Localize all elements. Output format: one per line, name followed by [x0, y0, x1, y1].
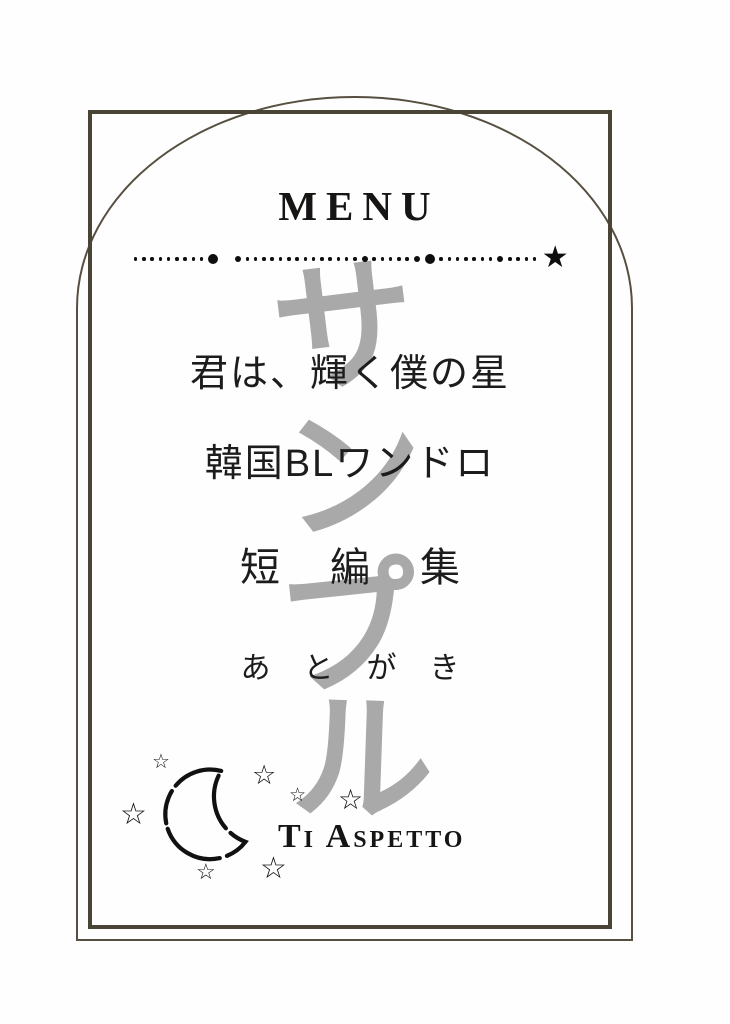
- outline-star-icon: ☆: [338, 786, 363, 814]
- dotted-divider: ★: [88, 245, 612, 273]
- divider-dot: [362, 256, 368, 262]
- footer-text: Ti Aspetto: [278, 818, 465, 856]
- outline-star-icon: ☆: [252, 762, 276, 789]
- menu-item-short-stories: 短編集: [88, 535, 612, 593]
- divider-dot: [345, 257, 349, 261]
- divider-dot: [246, 257, 250, 261]
- divider-dot: [337, 257, 341, 261]
- divider-dot: [425, 254, 435, 264]
- divider-dots: [131, 254, 538, 264]
- divider-dot: [405, 257, 409, 261]
- divider-dot: [262, 257, 266, 261]
- divider-dot: [497, 256, 503, 262]
- divider-dot: [472, 257, 476, 261]
- divider-dot: [200, 257, 204, 261]
- divider-dot: [508, 257, 512, 261]
- menu-item-story-2: 韓国BLワンドロ: [88, 432, 612, 487]
- divider-dot: [353, 257, 357, 261]
- divider-dot: [150, 257, 154, 261]
- divider-dot: [287, 257, 291, 261]
- divider-dot: [183, 257, 187, 261]
- divider-dot: [448, 257, 452, 261]
- divider-dot: [175, 257, 179, 261]
- filled-star-icon: ★: [542, 243, 569, 273]
- outline-star-icon: ☆: [260, 854, 287, 884]
- menu-item-story-1: 君は、輝く僕の星: [88, 342, 612, 397]
- divider-dot: [328, 257, 332, 261]
- divider-dot: [464, 257, 468, 261]
- menu-page: サ ン プ ル MENU ★ 君は、輝く僕の星 韓国BLワンドロ 短編集 あとが…: [0, 0, 730, 1024]
- divider-dot: [489, 257, 493, 261]
- divider-gap: [223, 259, 230, 260]
- divider-dot: [304, 257, 308, 261]
- divider-dot: [312, 257, 316, 261]
- divider-dot: [254, 257, 258, 261]
- divider-dot: [270, 257, 274, 261]
- divider-dot: [414, 256, 420, 262]
- divider-dot: [381, 257, 385, 261]
- divider-dot: [235, 256, 241, 262]
- outline-star-icon: ☆: [120, 800, 147, 830]
- divider-dot: [525, 257, 529, 261]
- divider-dot: [208, 254, 218, 264]
- divider-dot: [481, 257, 485, 261]
- divider-dot: [516, 257, 520, 261]
- page-title: MENU: [88, 182, 621, 230]
- divider-dot: [320, 257, 324, 261]
- divider-dot: [159, 257, 163, 261]
- outline-star-icon: ☆: [289, 786, 306, 805]
- divider-dot: [192, 257, 196, 261]
- outline-star-icon: ☆: [196, 861, 216, 883]
- divider-dot: [279, 257, 283, 261]
- divider-dot: [134, 257, 138, 261]
- divider-dot: [389, 257, 393, 261]
- divider-dot: [533, 257, 537, 261]
- divider-dot: [372, 257, 376, 261]
- menu-item-afterword: あとがき: [88, 643, 612, 687]
- divider-dot: [397, 257, 401, 261]
- outline-star-icon: ☆: [152, 752, 170, 772]
- divider-dot: [167, 257, 171, 261]
- divider-dot: [456, 257, 460, 261]
- divider-dot: [439, 257, 443, 261]
- divider-dot: [142, 257, 146, 261]
- divider-dot: [295, 257, 299, 261]
